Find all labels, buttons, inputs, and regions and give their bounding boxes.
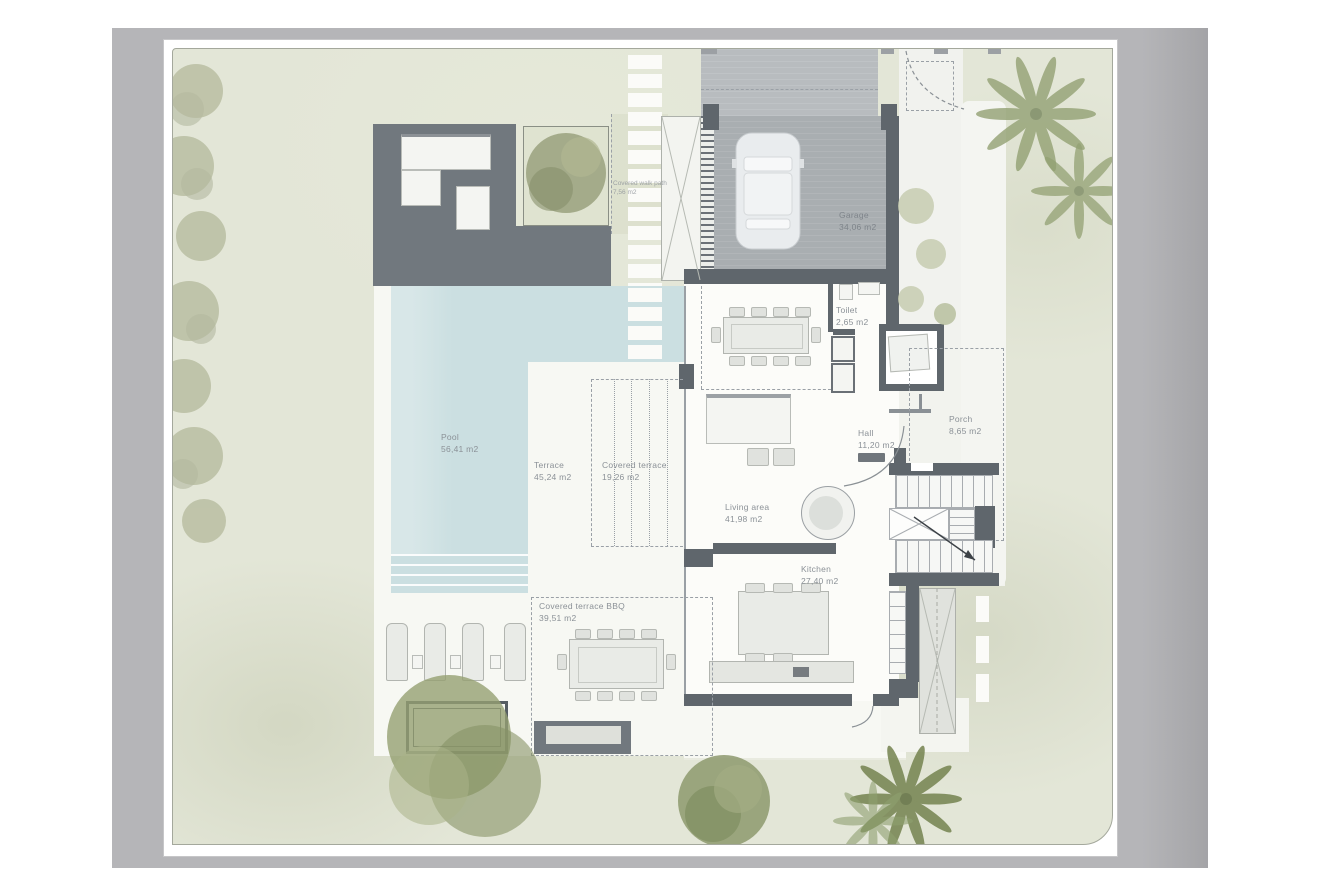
- chair: [619, 691, 635, 701]
- fence-post: [881, 49, 894, 54]
- room-name: Garage: [839, 209, 876, 221]
- room-area: 45,24 m2: [534, 471, 571, 483]
- outdoor-sofa-chaise: [401, 170, 441, 206]
- kitchen-divider-corner: [684, 549, 713, 567]
- fence-post: [988, 49, 1001, 54]
- pillar-west: [679, 364, 694, 389]
- toilet-wc: [858, 282, 880, 295]
- sun-lounger: [462, 623, 484, 681]
- dining-table-inner: [731, 324, 803, 349]
- louver-panel: [919, 588, 956, 734]
- room-area: 34,06 m2: [839, 221, 876, 233]
- chair: [729, 356, 745, 366]
- driveway: [701, 49, 878, 116]
- fence-post: [934, 49, 948, 54]
- room-area: 11,20 m2: [858, 439, 895, 451]
- chair: [795, 307, 811, 317]
- sun-deck-extension: [516, 226, 611, 286]
- side-table: [450, 655, 461, 669]
- chair: [557, 654, 567, 670]
- ceiling-line-v: [701, 286, 702, 389]
- bench-cushion: [546, 726, 621, 744]
- kitchen-island: [738, 591, 829, 655]
- stair-wall-south: [889, 573, 999, 586]
- pergola-beam: [667, 379, 668, 546]
- garden-slab-3: [976, 674, 989, 702]
- kitchen-east-wall: [906, 586, 919, 682]
- room-area: 7,56 m2: [613, 188, 667, 197]
- room-name: Porch: [949, 413, 981, 425]
- stair-wall-notch: [911, 463, 933, 471]
- pool-label: Pool 56,41 m2: [441, 431, 478, 456]
- gate-dashed-outline: [906, 61, 954, 111]
- living-area-label: Living area 41,98 m2: [725, 501, 769, 526]
- sofa: [706, 394, 791, 444]
- sun-lounger: [504, 623, 526, 681]
- garden-tree-round: [678, 755, 770, 845]
- house-south-wall-east: [873, 694, 899, 706]
- porch-label: Porch 8,65 m2: [949, 413, 981, 438]
- room-name: Covered terrace BBQ: [539, 600, 625, 612]
- level-badge: [858, 453, 885, 462]
- toilet-label: Toilet 2,65 m2: [836, 304, 868, 329]
- room-name: Toilet: [836, 304, 868, 316]
- toilet-sink: [839, 284, 853, 300]
- chair: [773, 356, 789, 366]
- chair: [795, 356, 811, 366]
- room-name: Hall: [858, 427, 895, 439]
- sun-lounger: [386, 623, 408, 681]
- stool: [773, 583, 793, 593]
- planter-top: [523, 126, 609, 226]
- palm-tree-northeast-2: [1031, 143, 1113, 239]
- planter-bottom-inner: [413, 708, 501, 747]
- chair: [619, 629, 635, 639]
- stepping-stones: [628, 288, 662, 360]
- kitchen-label: Kitchen 27,40 m2: [801, 563, 838, 588]
- outdoor-sofa: [401, 134, 491, 170]
- room-name: Living area: [725, 501, 769, 513]
- floor-plan: Pool 56,41 m2 Terrace 45,24 m2 Covered t…: [172, 48, 1113, 845]
- room-name: Covered walk path: [613, 179, 667, 188]
- covered-terrace-label: Covered terrace 19,26 m2: [602, 459, 667, 484]
- pergola-line-top: [591, 379, 683, 380]
- room-name: Covered terrace: [602, 459, 667, 471]
- stair-flight-lower: [895, 540, 993, 573]
- wall-stub-east: [894, 448, 906, 464]
- cooktop: [793, 667, 809, 677]
- chair: [811, 327, 821, 343]
- room-area: 8,65 m2: [949, 425, 981, 437]
- hall-cabinet-2: [831, 363, 855, 393]
- pantry-shelves: [889, 591, 906, 674]
- garage-floor: [714, 116, 899, 284]
- hall-cabinet-1: [831, 336, 855, 362]
- fence-post: [701, 49, 717, 54]
- chair: [773, 307, 789, 317]
- pool-steps: [391, 554, 528, 593]
- chair: [751, 356, 767, 366]
- gate-pillar-east: [881, 104, 897, 130]
- ottoman: [773, 448, 795, 466]
- garage-east-wall: [886, 116, 899, 269]
- kitchen-divider-wall: [713, 543, 836, 554]
- garden-slab-2: [976, 636, 989, 663]
- terrace-label: Terrace 45,24 m2: [534, 459, 571, 484]
- room-name: Kitchen: [801, 563, 838, 575]
- chair: [666, 654, 676, 670]
- side-table: [412, 655, 423, 669]
- slatted-screen: [701, 116, 714, 281]
- room-name: Pool: [441, 431, 478, 443]
- tree-row-left: [173, 64, 226, 543]
- garden-slab-1: [976, 596, 989, 622]
- room-area: 39,51 m2: [539, 612, 625, 624]
- chair: [641, 629, 657, 639]
- chair: [575, 629, 591, 639]
- chair: [641, 691, 657, 701]
- ceiling-line: [701, 389, 831, 390]
- side-table: [490, 655, 501, 669]
- hall-label: Hall 11,20 m2: [858, 427, 895, 452]
- stair-wall-north: [889, 463, 999, 475]
- kitchen-counter: [709, 661, 854, 683]
- stair-flight-upper: [895, 475, 993, 508]
- terrace-floor-south: [684, 701, 906, 760]
- room-name: Terrace: [534, 459, 571, 471]
- cross-braced-screen: [661, 116, 701, 281]
- toilet-wall-south: [833, 329, 855, 335]
- chair: [575, 691, 591, 701]
- palm-tree-south-small: [833, 781, 913, 845]
- room-area: 56,41 m2: [441, 443, 478, 455]
- room-area: 19,26 m2: [602, 471, 667, 483]
- gate-pillar-west: [703, 104, 719, 130]
- sun-lounger: [424, 623, 446, 681]
- dining-table-outdoor-inner: [578, 647, 657, 683]
- ottoman: [747, 448, 769, 466]
- chair: [711, 327, 721, 343]
- stair-winders: [949, 508, 975, 540]
- chair: [597, 691, 613, 701]
- viewer-canvas: Pool 56,41 m2 Terrace 45,24 m2 Covered t…: [112, 28, 1208, 868]
- stair-void: [889, 508, 949, 540]
- plan-page: Pool 56,41 m2 Terrace 45,24 m2 Covered t…: [163, 39, 1118, 857]
- room-area: 2,65 m2: [836, 316, 868, 328]
- deck-table: [456, 186, 490, 230]
- covered-walk-path-label: Covered walk path 7,56 m2: [613, 179, 667, 197]
- driveway-dashed-line: [701, 89, 878, 90]
- stool: [745, 583, 765, 593]
- pergola-line: [591, 379, 592, 546]
- bbq-terrace-label: Covered terrace BBQ 39,51 m2: [539, 600, 625, 625]
- garage-label: Garage 34,06 m2: [839, 209, 876, 234]
- room-area: 41,98 m2: [725, 513, 769, 525]
- room-area: 27,40 m2: [801, 575, 838, 587]
- toilet-wall-west: [828, 284, 833, 332]
- round-chair-cushion: [809, 496, 843, 530]
- pergola-line-bottom: [591, 546, 683, 547]
- chair: [751, 307, 767, 317]
- chair: [729, 307, 745, 317]
- entry-path-slabs: [628, 55, 662, 286]
- chair: [597, 629, 613, 639]
